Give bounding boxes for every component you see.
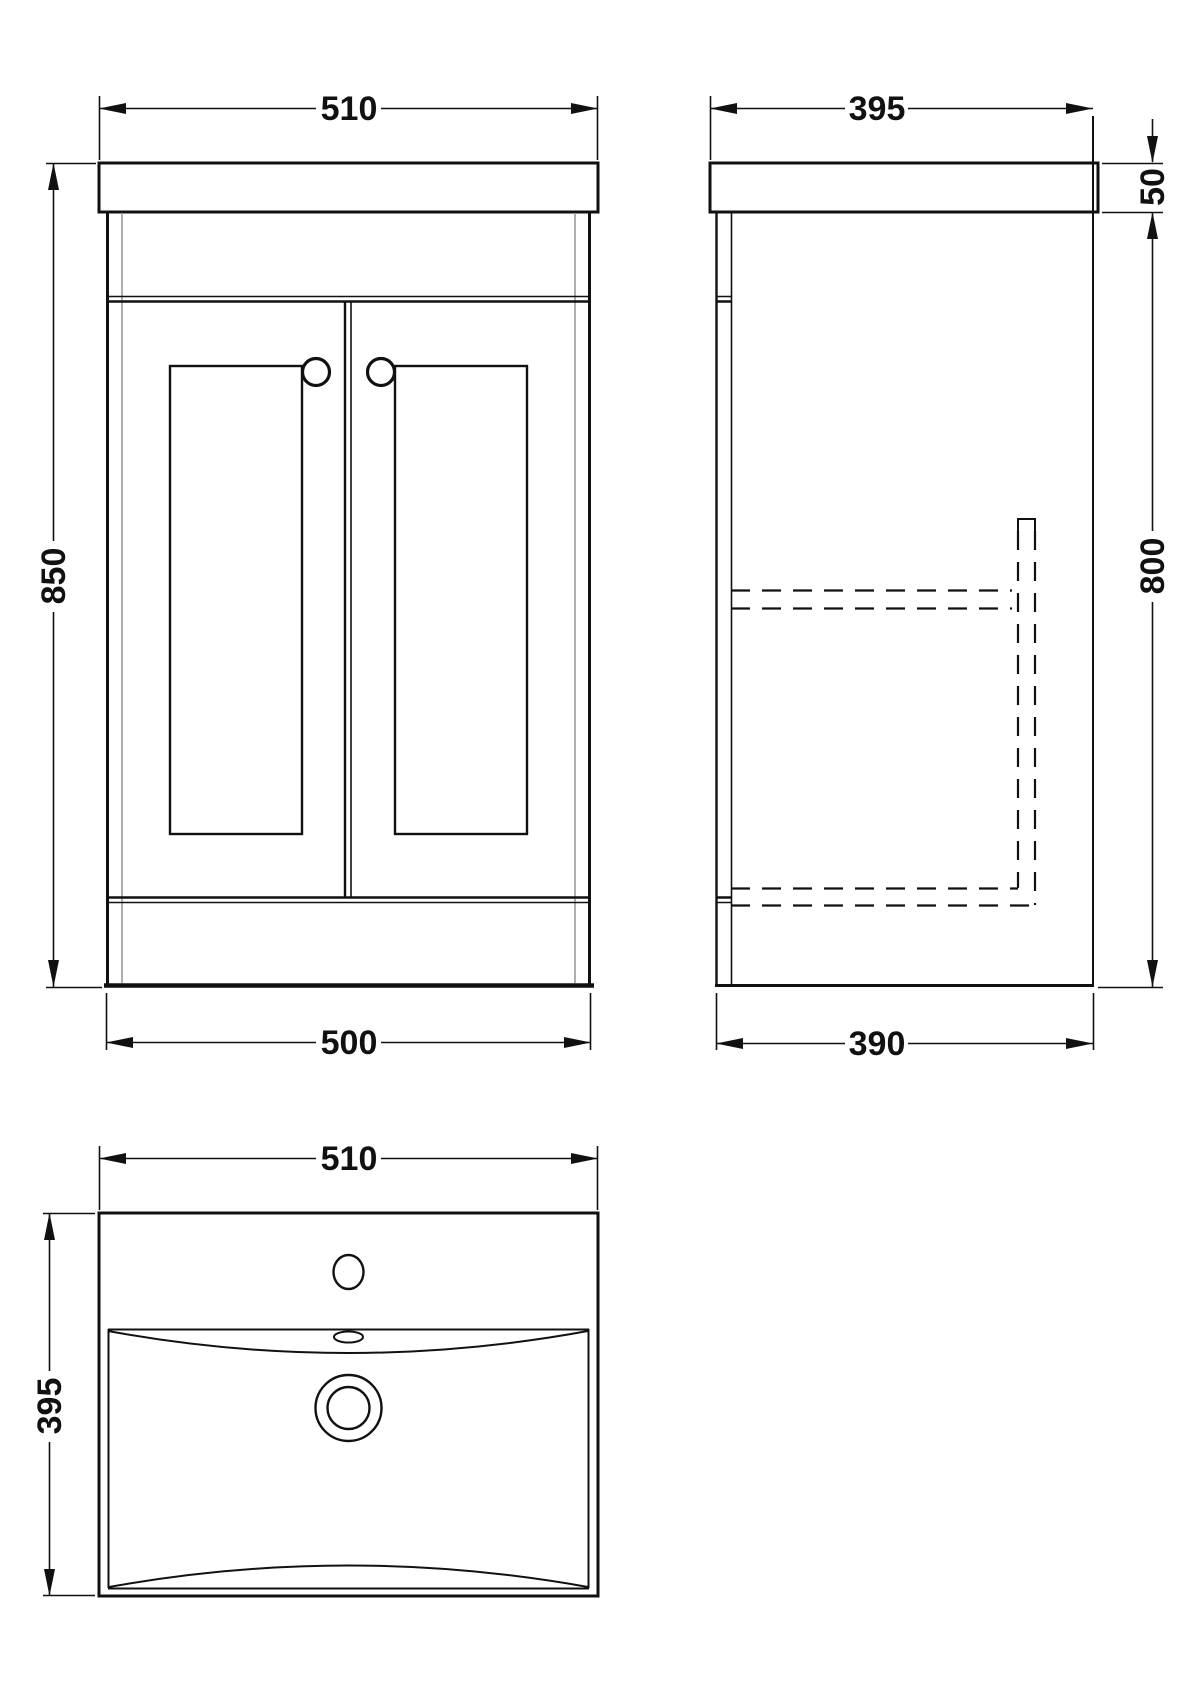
waste-outer-circle xyxy=(316,1375,382,1441)
basin-plan-view: 510 395 xyxy=(31,1140,598,1596)
left-door-panel xyxy=(170,366,302,834)
arrow-right-icon xyxy=(564,1037,591,1048)
void-top-cap xyxy=(1018,519,1035,533)
shelf-dashed-lines xyxy=(731,591,1012,609)
arrow-left-icon xyxy=(99,1153,126,1164)
arrow-left-icon xyxy=(106,1037,133,1048)
overflow-slot xyxy=(334,1332,363,1343)
dim-side-cabinet-height: 800 xyxy=(1098,212,1172,988)
base-dashed-lines xyxy=(731,889,1035,906)
dim-front-width-top: 510 xyxy=(99,90,598,160)
front-view: 510 850 500 xyxy=(35,90,598,1062)
technical-drawing-canvas: 510 850 500 xyxy=(0,0,1200,1698)
dim-side-cabinet-height-label: 800 xyxy=(1134,538,1172,595)
arrow-up-icon xyxy=(44,1213,55,1240)
right-door-knob xyxy=(368,359,395,386)
dim-side-depth-top-label: 395 xyxy=(849,90,906,128)
dim-front-width-top-label: 510 xyxy=(321,90,378,128)
dim-front-height: 850 xyxy=(35,163,102,988)
dim-front-height-label: 850 xyxy=(35,548,73,605)
dim-side-depth-bottom-label: 390 xyxy=(849,1025,906,1063)
arrow-right-icon xyxy=(571,1153,598,1164)
tap-hole xyxy=(334,1255,364,1289)
basin-inner-sides xyxy=(109,1329,589,1588)
dim-basin-width: 510 xyxy=(99,1140,598,1210)
arrow-left-icon xyxy=(99,103,126,114)
left-door-knob xyxy=(303,359,330,386)
dim-basin-depth: 395 xyxy=(31,1213,95,1596)
dim-side-worktop-height: 50 xyxy=(1102,119,1172,213)
arrow-right-icon xyxy=(1066,103,1093,114)
dim-basin-width-label: 510 xyxy=(321,1140,378,1178)
right-door-panel xyxy=(395,366,527,834)
basin-bowl-front-curve xyxy=(109,1566,588,1588)
arrow-down-icon xyxy=(48,960,59,987)
dim-side-depth-bottom: 390 xyxy=(716,993,1094,1063)
arrow-up-icon xyxy=(1147,212,1158,239)
arrow-down-icon xyxy=(1147,136,1158,163)
vanity-drawing-svg: 510 850 500 xyxy=(0,0,1200,1698)
side-countertop xyxy=(710,163,1098,212)
dim-side-depth-top: 395 xyxy=(710,90,1093,160)
arrow-up-icon xyxy=(48,163,59,190)
side-door-joint-lines xyxy=(716,302,731,898)
arrow-left-icon xyxy=(716,1038,743,1049)
basin-outer-rim xyxy=(99,1213,598,1596)
dim-front-width-bottom: 500 xyxy=(106,993,591,1062)
waste-inner-circle xyxy=(328,1387,370,1429)
dim-front-width-bottom-label: 500 xyxy=(321,1024,378,1062)
side-door-joint-thin-lines xyxy=(716,297,731,903)
arrow-down-icon xyxy=(44,1569,55,1596)
front-cabinet-sides xyxy=(108,212,590,985)
side-hidden-lines xyxy=(731,519,1035,906)
arrow-right-icon xyxy=(571,103,598,114)
front-countertop xyxy=(99,163,598,212)
arrow-right-icon xyxy=(1066,1038,1093,1049)
dim-side-worktop-height-label: 50 xyxy=(1134,168,1172,206)
dim-basin-depth-label: 395 xyxy=(31,1378,69,1435)
side-view: 395 50 800 390 xyxy=(710,90,1172,1063)
front-carcass-inner-edges xyxy=(122,213,575,983)
arrow-left-icon xyxy=(710,103,737,114)
arrow-down-icon xyxy=(1147,960,1158,987)
